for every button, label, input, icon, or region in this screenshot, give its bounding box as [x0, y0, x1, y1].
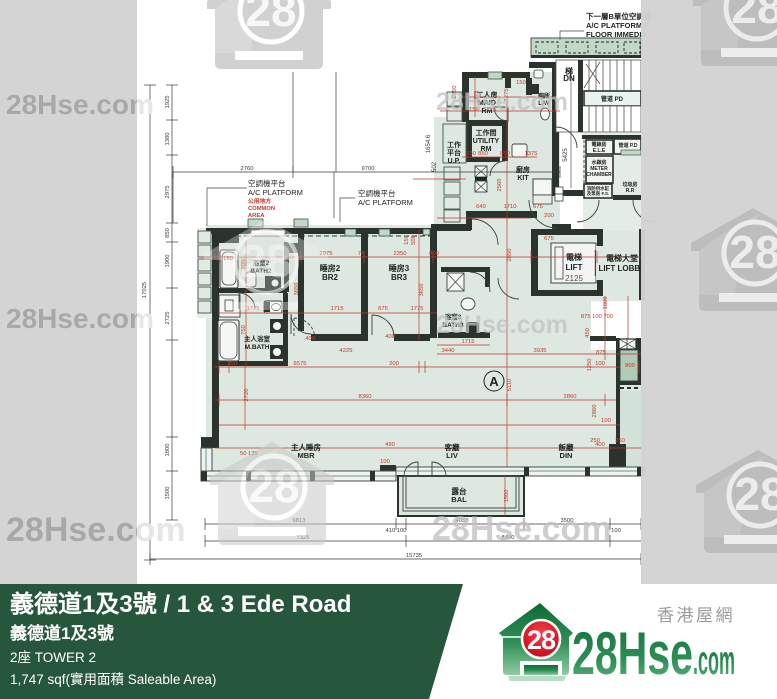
svg-text:800: 800 — [625, 363, 635, 369]
svg-text:1250: 1250 — [587, 359, 593, 372]
svg-text:2975: 2975 — [165, 186, 171, 199]
svg-text:75: 75 — [358, 251, 364, 257]
svg-text:義德道1及3號: 義德道1及3號 — [10, 623, 114, 643]
svg-text:150: 150 — [404, 235, 410, 245]
svg-text:廚房: 廚房 — [516, 165, 530, 174]
svg-text:490: 490 — [385, 442, 395, 448]
svg-text:1715: 1715 — [462, 339, 475, 345]
svg-text:2860: 2860 — [592, 405, 598, 418]
svg-text:28Hse.com: 28Hse.com — [6, 303, 154, 334]
svg-text:2座 TOWER 2: 2座 TOWER 2 — [10, 650, 96, 665]
svg-text:1715: 1715 — [331, 306, 344, 312]
svg-text:U.P.: U.P. — [448, 158, 461, 165]
svg-text:675: 675 — [378, 306, 388, 312]
svg-text:2125: 2125 — [565, 274, 583, 283]
svg-text:A/C PLATFORM: A/C PLATFORM — [358, 198, 413, 207]
svg-text:150: 150 — [466, 151, 476, 157]
svg-text:1800: 1800 — [165, 444, 171, 457]
svg-text:2760: 2760 — [241, 166, 254, 172]
svg-text:M.BATH: M.BATH — [245, 344, 270, 351]
svg-text:BR2: BR2 — [322, 273, 339, 282]
svg-text:R.R: R.R — [626, 188, 635, 194]
svg-text:9700: 9700 — [362, 166, 375, 172]
svg-text:及泵房 F.S.: 及泵房 F.S. — [587, 190, 610, 197]
svg-text:2850: 2850 — [507, 249, 513, 262]
svg-text:502: 502 — [432, 161, 438, 172]
svg-text:6575: 6575 — [294, 361, 307, 367]
svg-text:管道 PD: 管道 PD — [601, 95, 624, 103]
svg-text:電梯大堂: 電梯大堂 — [606, 253, 638, 263]
svg-text:DN: DN — [563, 74, 575, 83]
svg-text:1500: 1500 — [504, 490, 510, 503]
svg-text:1375: 1375 — [525, 151, 538, 157]
svg-text:A/C PLATFORM F: A/C PLATFORM F — [586, 21, 649, 30]
svg-text:1654.6: 1654.6 — [426, 134, 432, 153]
svg-text:17025: 17025 — [142, 282, 148, 298]
svg-text:850: 850 — [500, 151, 510, 157]
svg-text:28Hse.com: 28Hse.com — [436, 311, 568, 339]
svg-text:875: 875 — [596, 350, 606, 356]
svg-text:BAL: BAL — [451, 495, 467, 504]
svg-text:E.L.E: E.L.E — [593, 148, 606, 154]
svg-text:1710: 1710 — [504, 204, 517, 210]
svg-text:28Hse.com: 28Hse.com — [6, 89, 154, 120]
svg-text:空調機平台: 空調機平台 — [248, 178, 286, 188]
svg-text:3650: 3650 — [294, 283, 300, 296]
svg-text:2350: 2350 — [394, 251, 407, 257]
svg-text:640: 640 — [476, 204, 486, 210]
svg-text:2720: 2720 — [244, 389, 250, 402]
svg-text:2725: 2725 — [165, 312, 171, 325]
svg-text:100: 100 — [611, 528, 621, 534]
svg-text:管道 P.D: 管道 P.D — [618, 142, 637, 149]
svg-text:1775: 1775 — [411, 306, 424, 312]
svg-text:100: 100 — [601, 418, 611, 424]
svg-text:1500: 1500 — [165, 487, 171, 500]
svg-text:電梯: 電梯 — [566, 252, 582, 262]
svg-text:LIFT: LIFT — [566, 263, 583, 272]
svg-text:1,747 sqf(實用面積 Saleable Area): 1,747 sqf(實用面積 Saleable Area) — [10, 671, 216, 687]
svg-text:1900: 1900 — [165, 255, 171, 268]
svg-text:15735: 15735 — [406, 553, 422, 559]
svg-text:400: 400 — [305, 336, 315, 342]
svg-text:3935: 3935 — [534, 348, 547, 354]
svg-text:2860: 2860 — [564, 394, 577, 400]
svg-text:主人浴室: 主人浴室 — [244, 334, 271, 343]
svg-text:250: 250 — [590, 438, 600, 444]
svg-text:675: 675 — [544, 236, 554, 242]
svg-text:公用地方: 公用地方 — [248, 197, 271, 205]
svg-text:450: 450 — [585, 328, 591, 338]
svg-text:香港屋網: 香港屋網 — [657, 606, 735, 625]
svg-text:350: 350 — [227, 361, 237, 367]
svg-text:AREA: AREA — [248, 213, 265, 219]
svg-text:睡房3: 睡房3 — [389, 263, 410, 273]
svg-text:工作間: 工作間 — [476, 128, 497, 137]
svg-text:28: 28 — [527, 625, 556, 655]
svg-text:200: 200 — [544, 213, 554, 219]
svg-text:675: 675 — [533, 204, 543, 210]
svg-text:750: 750 — [241, 325, 247, 335]
svg-text:平台: 平台 — [447, 148, 461, 157]
svg-text:1800: 1800 — [603, 297, 609, 310]
svg-text:410 100: 410 100 — [386, 528, 407, 534]
svg-text:3650: 3650 — [419, 284, 425, 297]
svg-text:200: 200 — [389, 361, 399, 367]
svg-text:RM: RM — [481, 146, 492, 153]
svg-text:A/C PLATFORM: A/C PLATFORM — [248, 188, 303, 197]
svg-text:8360: 8360 — [359, 394, 372, 400]
svg-text:LIV: LIV — [446, 451, 458, 460]
svg-text:850: 850 — [165, 228, 171, 238]
svg-text:1925: 1925 — [165, 96, 171, 109]
svg-text:KIT: KIT — [517, 175, 529, 182]
svg-text:電錶房: 電錶房 — [591, 141, 606, 148]
svg-text:COMMON: COMMON — [248, 206, 275, 212]
svg-text:250: 250 — [615, 438, 625, 444]
svg-text:CHAMBER: CHAMBER — [586, 172, 612, 178]
svg-text:水錶房: 水錶房 — [590, 159, 606, 166]
svg-text:工作: 工作 — [447, 140, 461, 149]
svg-text:28Hse.com: 28Hse.com — [436, 88, 568, 116]
svg-text:FLOOR IMMEDIA: FLOOR IMMEDIA — [586, 30, 647, 39]
svg-text:垃圾房: 垃圾房 — [622, 181, 637, 188]
svg-text:UTILITY: UTILITY — [473, 138, 500, 145]
svg-text:5425: 5425 — [563, 148, 569, 162]
svg-text:.com: .com — [693, 637, 735, 683]
svg-text:2560: 2560 — [497, 179, 503, 192]
svg-text:1380: 1380 — [165, 133, 171, 146]
svg-text:28Hse: 28Hse — [572, 620, 693, 687]
svg-text:28Hse.com: 28Hse.com — [432, 510, 612, 548]
svg-text:500: 500 — [411, 235, 417, 245]
svg-text:400: 400 — [385, 334, 395, 340]
svg-text:LIFT LOBBY: LIFT LOBBY — [598, 264, 646, 273]
svg-text:3440: 3440 — [442, 348, 455, 354]
svg-text:5110: 5110 — [507, 379, 513, 391]
svg-text:800: 800 — [429, 251, 439, 257]
svg-text:BR3: BR3 — [391, 273, 408, 282]
svg-text:義德道1及3號 / 1 & 3 Ede Road: 義德道1及3號 / 1 & 3 Ede Road — [10, 590, 351, 618]
svg-text:875 100 700: 875 100 700 — [581, 314, 613, 320]
svg-text:睡房2: 睡房2 — [320, 263, 341, 273]
svg-text:4225: 4225 — [340, 348, 353, 354]
svg-text:空調機平台: 空調機平台 — [358, 188, 396, 198]
svg-text:100: 100 — [595, 361, 605, 367]
svg-text:100: 100 — [380, 459, 390, 465]
svg-text:A: A — [489, 374, 499, 389]
svg-text:150: 150 — [516, 80, 526, 86]
svg-text:DIN: DIN — [560, 451, 573, 460]
